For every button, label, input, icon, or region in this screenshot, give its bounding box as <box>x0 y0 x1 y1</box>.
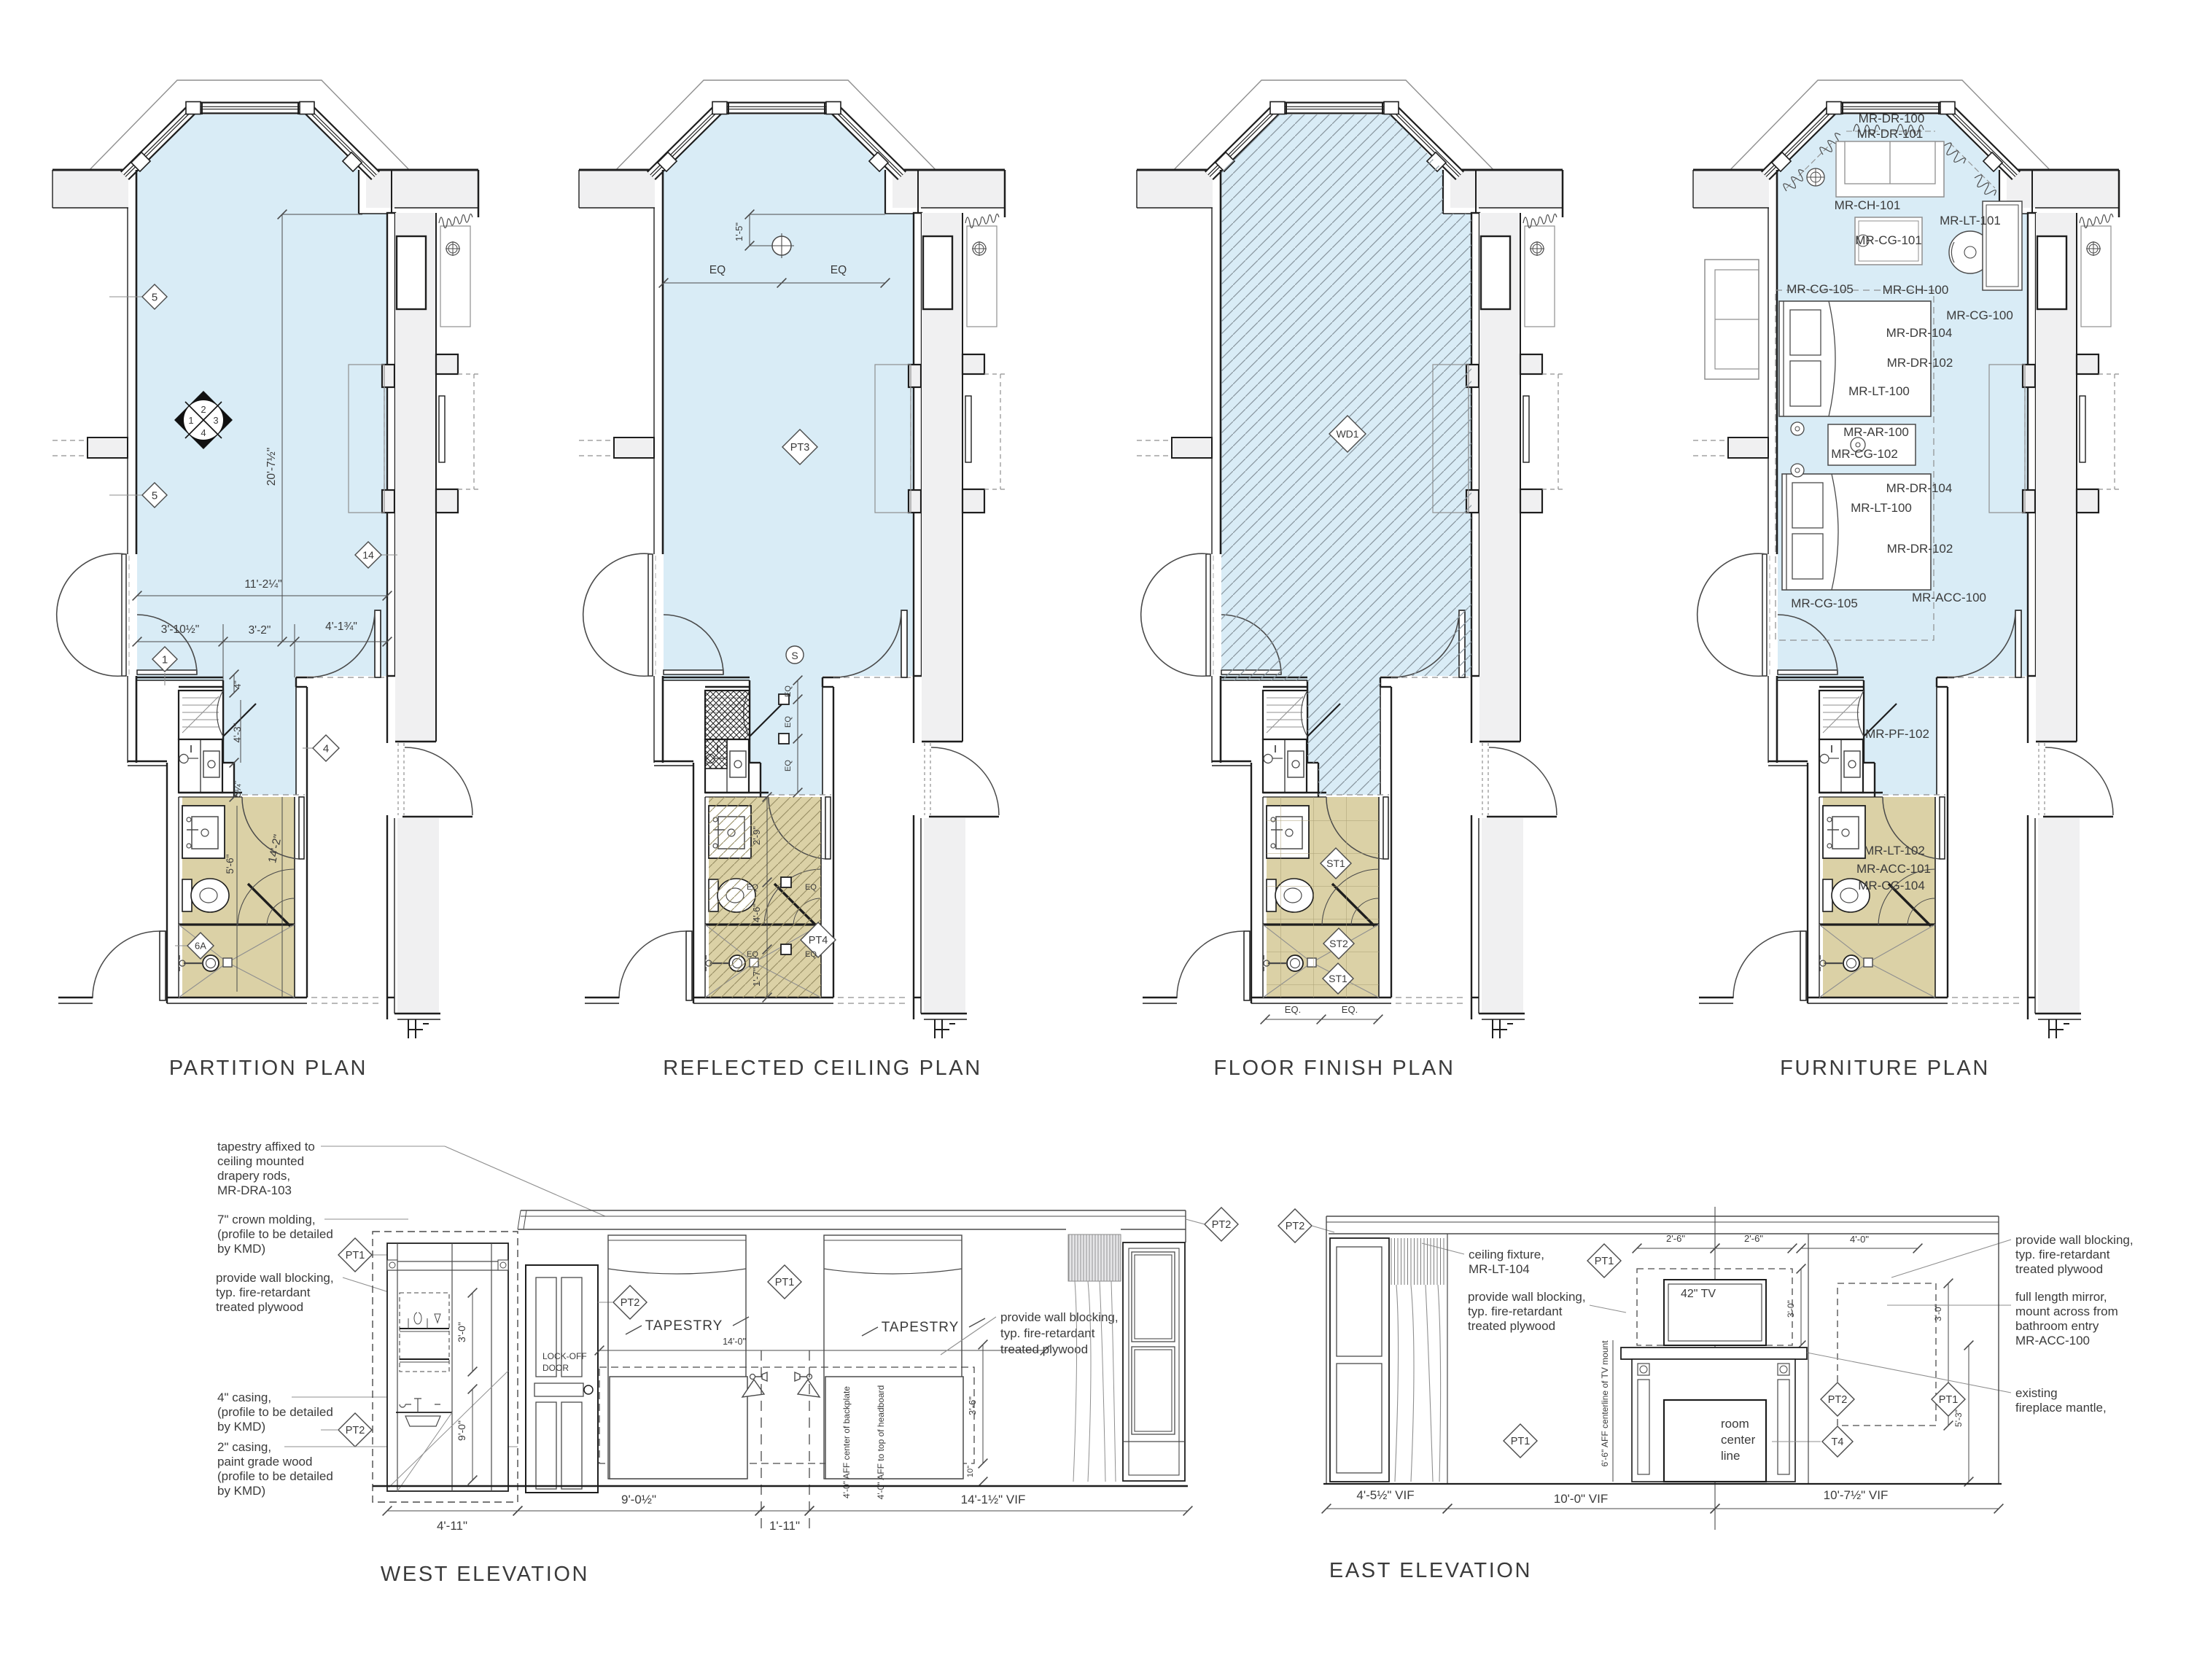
svg-text:5'-6": 5'-6" <box>225 854 236 874</box>
svg-text:treated plywood: treated plywood <box>216 1300 303 1314</box>
svg-text:EQ: EQ <box>747 883 758 892</box>
svg-text:1: 1 <box>162 653 168 666</box>
svg-text:MR-CH-101: MR-CH-101 <box>1835 198 1901 212</box>
svg-text:by KMD): by KMD) <box>217 1242 265 1256</box>
svg-text:WD1: WD1 <box>1336 428 1358 440</box>
svg-text:provide wall blocking,: provide wall blocking, <box>216 1271 334 1285</box>
svg-text:WEST ELEVATION: WEST ELEVATION <box>381 1563 589 1586</box>
svg-text:FLOOR FINISH PLAN: FLOOR FINISH PLAN <box>1213 1057 1455 1080</box>
svg-text:4'-0" AFF center of backplate: 4'-0" AFF center of backplate <box>841 1386 852 1498</box>
svg-text:MR-DR-104: MR-DR-104 <box>1886 481 1953 495</box>
svg-text:(profile to be detailed: (profile to be detailed <box>217 1405 333 1419</box>
svg-text:EQ.: EQ. <box>1342 1004 1358 1015</box>
svg-text:T4: T4 <box>1832 1436 1844 1448</box>
svg-text:center: center <box>1721 1433 1756 1447</box>
svg-text:EQ: EQ <box>784 760 793 771</box>
svg-text:typ. fire-retardant: typ. fire-retardant <box>2015 1248 2110 1261</box>
svg-text:provide wall blocking,: provide wall blocking, <box>1468 1290 1586 1304</box>
svg-text:MR-LT-100: MR-LT-100 <box>1851 501 1912 515</box>
svg-text:ceiling fixture,: ceiling fixture, <box>1469 1248 1544 1261</box>
svg-text:typ. fire-retardant: typ. fire-retardant <box>1000 1326 1095 1340</box>
svg-text:PT1: PT1 <box>1595 1256 1614 1267</box>
svg-text:3'-0": 3'-0" <box>456 1322 467 1342</box>
svg-text:MR-CG-102: MR-CG-102 <box>1831 447 1898 461</box>
svg-text:9'-0½": 9'-0½" <box>621 1493 656 1506</box>
svg-text:7" crown molding,: 7" crown molding, <box>217 1213 316 1226</box>
svg-text:MR-ACC-100: MR-ACC-100 <box>2015 1334 2090 1347</box>
svg-text:14'-1½" VIF: 14'-1½" VIF <box>961 1493 1026 1506</box>
svg-text:bathroom entry: bathroom entry <box>2015 1319 2099 1333</box>
svg-text:by KMD): by KMD) <box>217 1484 265 1498</box>
svg-text:14'-0": 14'-0" <box>723 1337 746 1347</box>
svg-text:line: line <box>1721 1449 1740 1463</box>
svg-text:11'-2¼": 11'-2¼" <box>244 578 281 591</box>
svg-text:5: 5 <box>152 489 157 502</box>
svg-text:TAPESTRY: TAPESTRY <box>882 1320 960 1335</box>
svg-text:6'-6" AFF centerline of TV mou: 6'-6" AFF centerline of TV mount <box>1600 1340 1610 1467</box>
svg-text:S: S <box>791 650 798 661</box>
svg-text:tapestry affixed to: tapestry affixed to <box>217 1140 315 1154</box>
svg-text:MR-DR-101: MR-DR-101 <box>1857 127 1924 141</box>
svg-text:full length mirror,: full length mirror, <box>2015 1290 2107 1304</box>
svg-text:EQ: EQ <box>747 950 758 959</box>
svg-text:PT2: PT2 <box>621 1297 640 1309</box>
svg-text:5'-3": 5'-3" <box>1953 1409 1964 1427</box>
svg-text:REFLECTED CEILING PLAN: REFLECTED CEILING PLAN <box>663 1057 982 1080</box>
svg-text:MR-CG-104: MR-CG-104 <box>1858 879 1925 892</box>
svg-text:mount across from: mount across from <box>2015 1304 2118 1318</box>
svg-text:6A: 6A <box>195 941 206 952</box>
svg-text:PT2: PT2 <box>1212 1219 1232 1231</box>
svg-text:1: 1 <box>188 415 193 426</box>
svg-text:ceiling mounted: ceiling mounted <box>217 1154 304 1168</box>
svg-text:PT4: PT4 <box>809 935 828 946</box>
svg-text:PT3: PT3 <box>790 442 810 454</box>
svg-text:4": 4" <box>232 680 243 689</box>
svg-text:5¼": 5¼" <box>232 780 243 797</box>
svg-text:ST2: ST2 <box>1329 938 1348 949</box>
svg-text:2'-6": 2'-6" <box>1744 1233 1763 1244</box>
svg-text:4'-11": 4'-11" <box>437 1519 467 1533</box>
svg-text:EQ: EQ <box>805 883 817 892</box>
svg-text:paint grade wood: paint grade wood <box>217 1455 312 1469</box>
svg-text:PT2: PT2 <box>1828 1394 1848 1406</box>
svg-text:4'-0": 4'-0" <box>1850 1234 1869 1245</box>
svg-text:14: 14 <box>362 549 374 561</box>
svg-text:MR-DR-102: MR-DR-102 <box>1887 356 1953 370</box>
svg-text:MR-CG-105: MR-CG-105 <box>1786 282 1854 296</box>
svg-text:MR-LT-101: MR-LT-101 <box>1940 214 2001 227</box>
svg-text:treated plywood: treated plywood <box>1468 1319 1555 1333</box>
svg-text:EQ: EQ <box>831 264 847 276</box>
svg-text:MR-DRA-103: MR-DRA-103 <box>217 1183 292 1197</box>
svg-text:typ. fire-retardant: typ. fire-retardant <box>1468 1304 1563 1318</box>
svg-text:PT1: PT1 <box>775 1277 795 1288</box>
svg-text:9'-0": 9'-0" <box>456 1420 467 1441</box>
svg-text:MR-CH-100: MR-CH-100 <box>1883 283 1949 297</box>
svg-text:MR-ACC-100: MR-ACC-100 <box>1912 591 1986 604</box>
svg-text:5: 5 <box>152 291 157 303</box>
svg-text:3'-6": 3'-6" <box>967 1396 978 1415</box>
svg-text:1'-11": 1'-11" <box>769 1519 800 1533</box>
svg-text:PT1: PT1 <box>346 1250 365 1261</box>
svg-text:FURNITURE PLAN: FURNITURE PLAN <box>1780 1057 1990 1080</box>
svg-text:MR-DR-102: MR-DR-102 <box>1887 542 1953 556</box>
svg-text:42" TV: 42" TV <box>1681 1288 1716 1300</box>
svg-text:ST1: ST1 <box>1329 973 1347 984</box>
svg-text:1'-5": 1'-5" <box>734 222 744 241</box>
svg-text:2" casing,: 2" casing, <box>217 1440 271 1454</box>
svg-text:PT1: PT1 <box>1939 1394 1959 1406</box>
svg-text:fireplace mantle,: fireplace mantle, <box>2015 1401 2107 1415</box>
svg-text:3'-2": 3'-2" <box>249 624 271 637</box>
svg-text:PARTITION PLAN: PARTITION PLAN <box>169 1057 367 1080</box>
svg-text:EQ: EQ <box>709 264 726 276</box>
svg-text:PT1: PT1 <box>1511 1436 1531 1447</box>
svg-text:4'-0" AFF to top of headboard: 4'-0" AFF to top of headboard <box>876 1385 886 1500</box>
svg-text:MR-CG-100: MR-CG-100 <box>1946 308 2013 322</box>
svg-text:by KMD): by KMD) <box>217 1420 265 1434</box>
svg-text:MR-LT-100: MR-LT-100 <box>1848 384 1910 398</box>
svg-text:treated plywood: treated plywood <box>1000 1342 1088 1356</box>
svg-text:ST1: ST1 <box>1326 857 1345 869</box>
svg-text:MR-DR-104: MR-DR-104 <box>1886 326 1953 340</box>
svg-text:4: 4 <box>201 427 206 438</box>
svg-text:EQ: EQ <box>805 950 817 959</box>
svg-text:MR-LT-102: MR-LT-102 <box>1864 844 1925 857</box>
svg-text:DOOR: DOOR <box>542 1363 569 1373</box>
svg-text:TAPESTRY: TAPESTRY <box>645 1318 723 1334</box>
svg-text:10'-0" VIF: 10'-0" VIF <box>1554 1492 1608 1506</box>
svg-text:3'-0": 3'-0" <box>1933 1304 1943 1321</box>
svg-text:4'-3": 4'-3" <box>232 723 243 742</box>
svg-text:provide wall blocking,: provide wall blocking, <box>2015 1233 2134 1247</box>
svg-text:2: 2 <box>201 404 206 415</box>
svg-text:MR-AR-100: MR-AR-100 <box>1843 425 1909 439</box>
svg-text:treated plywood: treated plywood <box>2015 1262 2103 1276</box>
svg-text:(profile to be detailed: (profile to be detailed <box>217 1469 333 1483</box>
svg-text:drapery rods,: drapery rods, <box>217 1169 290 1183</box>
svg-text:EQ.: EQ. <box>1285 1004 1301 1015</box>
svg-text:4: 4 <box>323 742 329 755</box>
svg-text:2'-6": 2'-6" <box>1666 1233 1685 1244</box>
svg-text:LOCK-OFF: LOCK-OFF <box>542 1351 587 1361</box>
svg-text:MR-PF-102: MR-PF-102 <box>1865 727 1929 741</box>
svg-text:MR-CG-101: MR-CG-101 <box>1855 233 1922 247</box>
svg-text:PT2: PT2 <box>1286 1221 1305 1232</box>
svg-text:MR-CG-105: MR-CG-105 <box>1791 596 1858 610</box>
svg-text:2'-9": 2'-9" <box>751 826 762 845</box>
svg-text:MR-ACC-101: MR-ACC-101 <box>1856 862 1931 876</box>
svg-text:PT2: PT2 <box>346 1425 365 1436</box>
svg-text:MR-LT-104: MR-LT-104 <box>1469 1262 1530 1276</box>
svg-text:EQ: EQ <box>784 716 793 728</box>
svg-text:typ. fire-retardant: typ. fire-retardant <box>216 1286 311 1299</box>
svg-text:EAST ELEVATION: EAST ELEVATION <box>1329 1559 1532 1582</box>
svg-text:(profile to be detailed: (profile to be detailed <box>217 1227 333 1241</box>
svg-text:10'-7½" VIF: 10'-7½" VIF <box>1824 1488 1889 1502</box>
svg-text:4'-6": 4'-6" <box>751 903 762 922</box>
svg-text:4'-1¾": 4'-1¾" <box>325 621 357 633</box>
svg-text:3: 3 <box>213 415 218 426</box>
svg-text:3'-0": 3'-0" <box>1786 1300 1796 1318</box>
svg-text:4'-5½" VIF: 4'-5½" VIF <box>1356 1488 1414 1502</box>
svg-text:existing: existing <box>2015 1386 2058 1400</box>
svg-text:MR-DR-100: MR-DR-100 <box>1859 112 1925 125</box>
svg-text:1'-7": 1'-7" <box>751 968 762 987</box>
svg-text:4" casing,: 4" casing, <box>217 1391 271 1404</box>
svg-text:3'-10½": 3'-10½" <box>161 623 199 636</box>
svg-text:room: room <box>1721 1417 1749 1431</box>
svg-text:EQ: EQ <box>784 685 793 697</box>
svg-text:10": 10" <box>966 1466 975 1477</box>
svg-text:20'-7½": 20'-7½" <box>265 448 278 486</box>
